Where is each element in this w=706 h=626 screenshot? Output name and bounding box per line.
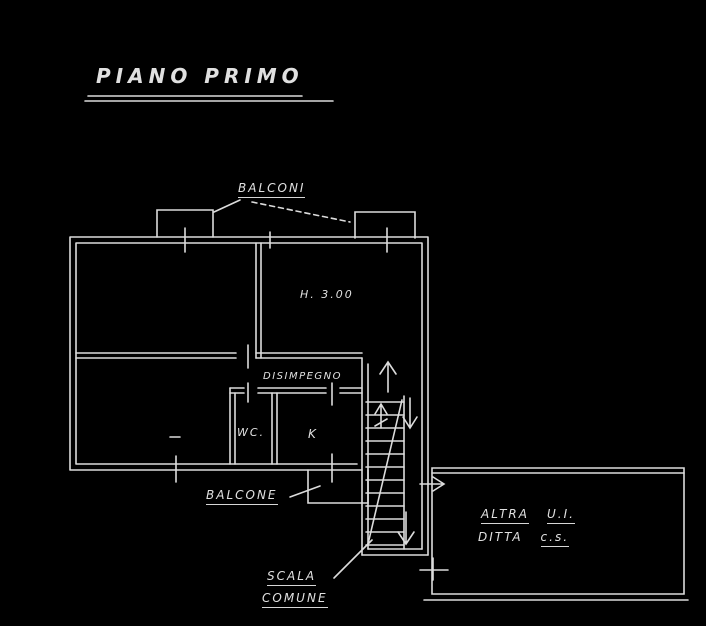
stair-arrows <box>375 362 444 544</box>
balcony-top-right <box>355 212 415 238</box>
floor-plan-canvas: PIANO PRIMO BALCONI H. 3.00 DISIMPEGNO W… <box>0 0 706 626</box>
balconies-label: BALCONI <box>238 182 305 198</box>
interior-walls <box>76 243 362 464</box>
title-underline <box>85 96 333 101</box>
staircase <box>366 396 404 549</box>
plan-title: PIANO PRIMO <box>96 66 304 86</box>
hallway-label: DISIMPEGNO <box>263 372 342 382</box>
apartment-walls <box>70 237 428 555</box>
room-height-label: H. 3.00 <box>300 289 354 300</box>
other-unit-line1-word1: ALTRA <box>481 508 529 524</box>
leader-lines <box>214 200 372 578</box>
plan-linework <box>0 0 706 626</box>
other-unit-line2-word1: DITTA <box>478 531 523 547</box>
other-unit-line1: ALTRA U.I. <box>481 508 575 524</box>
other-unit-line1-word2: U.I. <box>547 508 575 524</box>
stair-label-line1: SCALA <box>267 570 316 586</box>
other-unit-line2: DITTA c.s. <box>478 531 569 547</box>
balcony-label: BALCONE <box>206 489 278 505</box>
stair-label-line2: COMUNE <box>262 592 328 608</box>
kitchen-label: K <box>308 428 318 440</box>
wc-label: WC. <box>237 427 265 438</box>
other-unit-line2-word2: c.s. <box>541 531 569 547</box>
window-ticks <box>170 228 387 482</box>
